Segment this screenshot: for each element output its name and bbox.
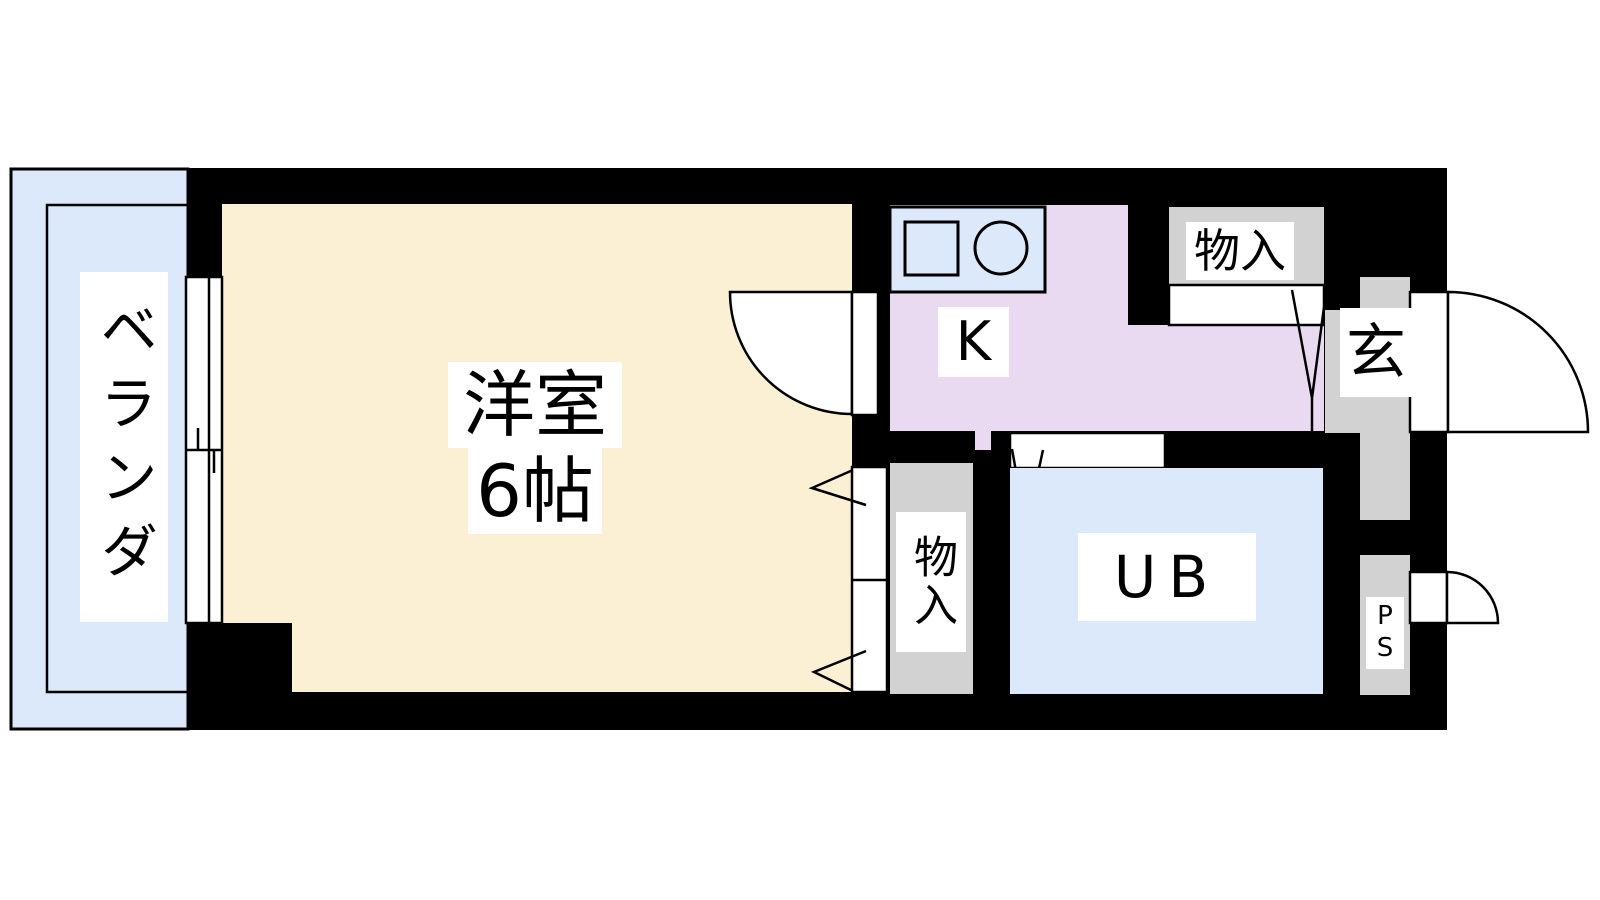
floor-plan-page: ベランダ 洋室 6帖 K 物入 玄 物入 UB PS xyxy=(0,0,1600,900)
kitchen-floor-gap xyxy=(975,431,991,450)
room-door-leaf xyxy=(852,292,878,415)
closet-mid-label: 物入 xyxy=(896,512,966,652)
western-room-size-label: 6帖 xyxy=(468,448,602,534)
floor-plan-drawing xyxy=(0,0,1600,900)
bath-door-frame xyxy=(1010,433,1165,468)
entrance-label: 玄 xyxy=(1340,308,1412,397)
veranda-label: ベランダ xyxy=(80,272,168,622)
pipe-space-label: PS xyxy=(1366,597,1404,669)
ps-door-swing-arc xyxy=(1447,572,1498,623)
kitchen-label: K xyxy=(938,307,1009,377)
entrance-door-swing-arc xyxy=(1448,292,1588,432)
kitchen-counter xyxy=(890,207,1045,292)
ps-door-leaf xyxy=(1410,572,1447,623)
closet-top-door xyxy=(1169,285,1324,325)
western-room-label: 洋室 xyxy=(448,362,622,448)
closet-top-label: 物入 xyxy=(1186,222,1294,280)
entrance-door-leaf xyxy=(1410,292,1448,432)
unit-bath-label: UB xyxy=(1078,533,1256,621)
